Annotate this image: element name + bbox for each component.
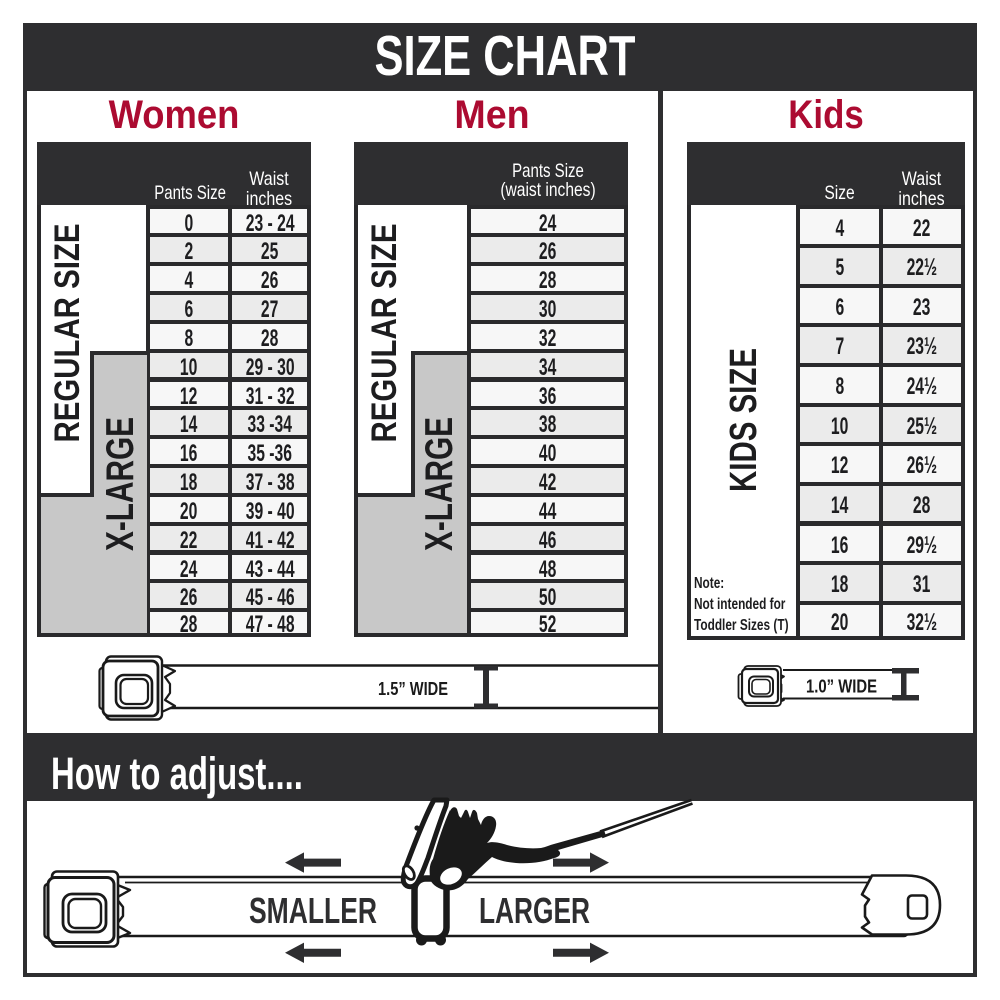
- svg-text:SMALLER: SMALLER: [249, 890, 377, 931]
- svg-text:LARGER: LARGER: [479, 890, 590, 931]
